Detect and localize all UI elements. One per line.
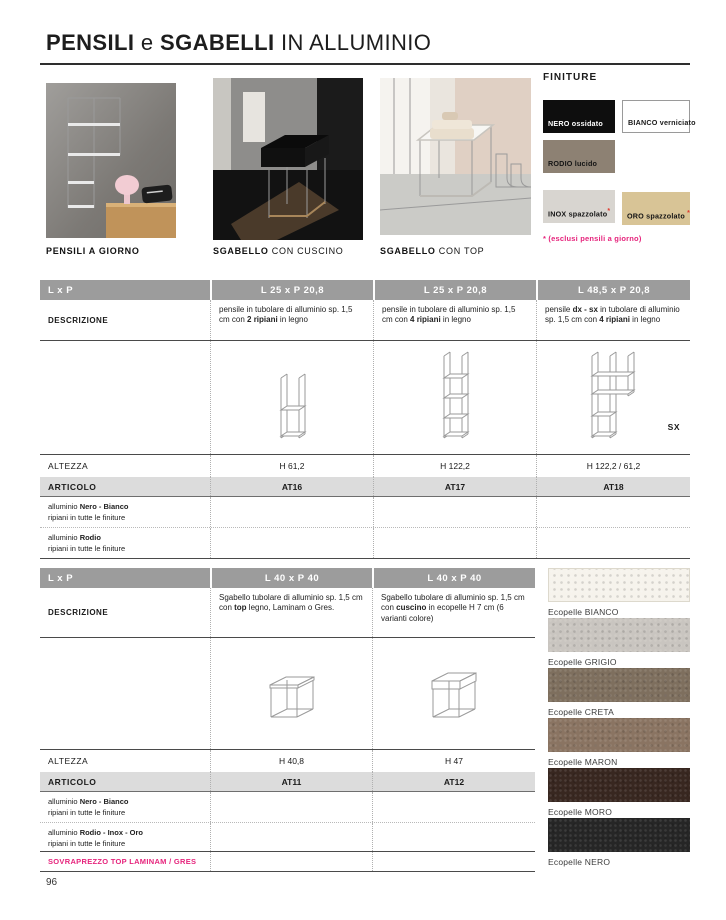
title-reg-1: e: [134, 30, 160, 55]
table2-header-col1: L 40 x P 40: [210, 568, 372, 588]
caption-bold: SGABELLO: [380, 246, 436, 256]
table2-descrizione-row: DESCRIZIONE Sgabello tubolare di allumin…: [40, 588, 535, 638]
ecopelle-label: Ecopelle GRIGIO: [548, 657, 690, 667]
table2-altezza-row: ALTEZZA H 40,8 H 47: [40, 750, 535, 772]
swatch-label: INOX spazzolato*: [548, 208, 610, 218]
finiture-note: * (esclusi pensili a giorno): [543, 234, 642, 243]
table2-finish-row-nero-bianco: alluminio Nero - Biancoripiani in tutte …: [40, 792, 535, 823]
catalog-page: PENSILI e SGABELLI IN ALLUMINIO: [0, 0, 726, 920]
empty-cell: [372, 823, 535, 851]
ecopelle-creta-block: Ecopelle CRETA: [548, 668, 690, 717]
empty-cell: [210, 497, 373, 527]
table1-header-row: L x P L 25 x P 20,8 L 25 x P 20,8 L 48,5…: [40, 280, 690, 300]
empty-cell: [372, 852, 535, 871]
ecopelle-nero-swatch: [548, 818, 690, 852]
ecopelle-moro-block: Ecopelle MORO: [548, 768, 690, 817]
swatch-bianco-verniciato: BIANCO verniciato: [622, 100, 690, 133]
swatch-label: BIANCO verniciato: [628, 118, 696, 127]
caption-sgabello-cuscino: SGABELLO CON CUSCINO: [213, 246, 344, 256]
ecopelle-grigio-block: Ecopelle GRIGIO: [548, 618, 690, 667]
asterisk: *: [685, 210, 690, 217]
empty-cell: [373, 497, 536, 527]
ecopelle-label: Ecopelle MORO: [548, 807, 690, 817]
caption-rest: CON CUSCINO: [269, 246, 344, 256]
altezza-at12: H 47: [372, 750, 535, 772]
articolo-at18: AT18: [536, 477, 690, 496]
ecopelle-bianco-block: Ecopelle BIANCO: [548, 568, 690, 617]
table1-finish-row-rodio: alluminio Rodioripiani in tutte le finit…: [40, 528, 690, 559]
finish-label: alluminio Rodio - Inox - Ororipiani in t…: [40, 823, 210, 851]
finiture-heading: FINITURE: [543, 72, 597, 83]
empty-cell: [536, 497, 690, 527]
altezza-label: ALTEZZA: [40, 750, 210, 772]
articolo-at12: AT12: [372, 772, 535, 791]
ecopelle-label: Ecopelle NERO: [548, 857, 690, 867]
drawing-cell-at16: [210, 341, 373, 454]
page-title: PENSILI e SGABELLI IN ALLUMINIO: [46, 30, 431, 56]
caption-bold: PENSILI A GIORNO: [46, 246, 140, 256]
shelf-2-ripiani-drawing: [275, 370, 309, 440]
swatch-oro-spazzolato: ORO spazzolato *: [622, 192, 690, 225]
caption-sgabello-top: SGABELLO CON TOP: [380, 246, 484, 256]
sx-label: SX: [668, 422, 680, 432]
altezza-at17: H 122,2: [373, 455, 536, 477]
swatch-label: ORO spazzolato *: [627, 210, 690, 220]
swatch-label: NERO ossidato: [548, 119, 603, 128]
table1-desc-at16: pensile in tubolare di alluminio sp. 1,5…: [210, 300, 373, 340]
table2-drawing-spacer: [40, 638, 210, 749]
table1-drawing-row: SX: [40, 341, 690, 455]
ecopelle-grigio-swatch: [548, 618, 690, 652]
altezza-at18: H 122,2 / 61,2: [536, 455, 690, 477]
ecopelle-maron-swatch: [548, 718, 690, 752]
title-bold-2: SGABELLI: [160, 30, 274, 55]
table2-header-row: L x P L 40 x P 40 L 40 x P 40: [40, 568, 535, 588]
ecopelle-label: Ecopelle BIANCO: [548, 607, 690, 617]
swatch-inox-spazzolato: INOX spazzolato*: [543, 190, 615, 223]
ecopelle-bianco-swatch: [548, 568, 690, 602]
table-sgabelli: L x P L 40 x P 40 L 40 x P 40 DESCRIZION…: [40, 568, 535, 872]
swatch-rodio-lucido: RODIO lucido: [543, 140, 615, 173]
table2-sovrapprezzo-row: SOVRAPREZZO TOP LAMINAM / GRES: [40, 852, 535, 872]
articolo-label: ARTICOLO: [40, 772, 210, 791]
empty-cell: [210, 823, 372, 851]
table-pensili: L x P L 25 x P 20,8 L 25 x P 20,8 L 48,5…: [40, 280, 690, 559]
swatch-label: RODIO lucido: [548, 159, 597, 168]
table1-header-col2: L 25 x P 20,8: [373, 280, 536, 300]
ecopelle-maron-block: Ecopelle MARON: [548, 718, 690, 767]
shelf-4-ripiani-drawing: [438, 348, 472, 440]
table1-drawing-spacer: [40, 341, 210, 454]
articolo-at11: AT11: [210, 772, 372, 791]
ecopelle-nero-block: Ecopelle NERO: [548, 818, 690, 867]
finish-label: alluminio Nero - Biancoripiani in tutte …: [40, 792, 210, 822]
empty-cell: [210, 852, 372, 871]
table1-descrizione-row: DESCRIZIONE pensile in tubolare di allum…: [40, 300, 690, 341]
table1-altezza-row: ALTEZZA H 61,2 H 122,2 H 122,2 / 61,2: [40, 455, 690, 477]
ecopelle-moro-swatch: [548, 768, 690, 802]
articolo-at16: AT16: [210, 477, 373, 496]
altezza-at16: H 61,2: [210, 455, 373, 477]
table1-desc-at18: pensile dx - sx in tubolare di alluminio…: [536, 300, 690, 340]
page-number: 96: [46, 877, 57, 888]
asterisk: *: [607, 208, 610, 215]
photo-sgabello-top: [380, 78, 531, 235]
caption-bold: SGABELLO: [213, 246, 269, 256]
photo-pensili-scene: [46, 83, 176, 238]
title-reg-2: IN ALLUMINIO: [274, 30, 431, 55]
empty-cell: [373, 528, 536, 558]
empty-cell: [210, 528, 373, 558]
empty-cell: [372, 792, 535, 822]
table1-finish-row-nero-bianco: alluminio Nero - Biancoripiani in tutte …: [40, 497, 690, 528]
table1-header-col3: L 48,5 x P 20,8: [536, 280, 690, 300]
table2-desc-at12: Sgabello tubolare di alluminio sp. 1,5 c…: [372, 588, 535, 637]
photo-pensili-a-giorno: [46, 83, 176, 238]
stool-cushion-drawing: [426, 671, 482, 721]
table2-articolo-row: ARTICOLO AT11 AT12: [40, 772, 535, 792]
articolo-at17: AT17: [373, 477, 536, 496]
photo-sgabello-top-scene: [380, 78, 531, 235]
articolo-label: ARTICOLO: [40, 477, 210, 496]
drawing-cell-at18: SX: [536, 341, 690, 454]
empty-cell: [536, 528, 690, 558]
photo-sgabello-cuscino: [213, 78, 363, 240]
photo-sgabello-cuscino-scene: [213, 78, 363, 240]
table1-articolo-row: ARTICOLO AT16 AT17 AT18: [40, 477, 690, 497]
table1-header-lxp: L x P: [40, 280, 210, 300]
finish-label: alluminio Rodioripiani in tutte le finit…: [40, 528, 210, 558]
swatch-nero-ossidato: NERO ossidato: [543, 100, 615, 133]
shelf-dx-sx-drawing: [586, 348, 642, 440]
table2-desc-at11: Sgabello tubolare di alluminio sp. 1,5 c…: [210, 588, 372, 637]
table2-header-col2: L 40 x P 40: [372, 568, 535, 588]
finish-label: alluminio Nero - Biancoripiani in tutte …: [40, 497, 210, 527]
empty-cell: [210, 792, 372, 822]
altezza-at11: H 40,8: [210, 750, 372, 772]
drawing-cell-at11: [210, 638, 372, 749]
table1-desc-at17: pensile in tubolare di alluminio sp. 1,5…: [373, 300, 536, 340]
table1-header-col1: L 25 x P 20,8: [210, 280, 373, 300]
ecopelle-label: Ecopelle MARON: [548, 757, 690, 767]
altezza-label: ALTEZZA: [40, 455, 210, 477]
descrizione-label: DESCRIZIONE: [40, 300, 210, 340]
title-bold-1: PENSILI: [46, 30, 134, 55]
sovrapprezzo-label: SOVRAPREZZO TOP LAMINAM / GRES: [40, 852, 210, 871]
caption-rest: CON TOP: [436, 246, 485, 256]
drawing-cell-at12: [372, 638, 535, 749]
table2-finish-row-rodio-inox-oro: alluminio Rodio - Inox - Ororipiani in t…: [40, 823, 535, 852]
ecopelle-label: Ecopelle CRETA: [548, 707, 690, 717]
caption-pensili-a-giorno: PENSILI A GIORNO: [46, 246, 140, 256]
ecopelle-creta-swatch: [548, 668, 690, 702]
stool-top-drawing: [264, 671, 320, 721]
table2-drawing-row: [40, 638, 535, 750]
drawing-cell-at17: [373, 341, 536, 454]
descrizione-label: DESCRIZIONE: [40, 588, 210, 637]
table2-header-lxp: L x P: [40, 568, 210, 588]
title-rule: [40, 63, 690, 65]
